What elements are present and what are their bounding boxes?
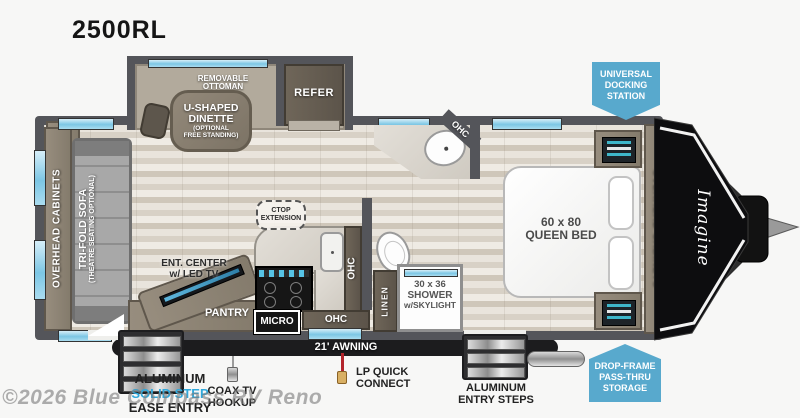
- stove-knobs: [259, 270, 309, 277]
- ent-center-label: ENT. CENTER w/ LED TV: [146, 258, 242, 280]
- step-tread: [467, 353, 525, 364]
- bath-sink-drain: [444, 146, 449, 151]
- refer-label: REFER: [284, 88, 344, 100]
- burner: [264, 282, 276, 294]
- sink-drain: [331, 251, 334, 254]
- microwave: MICRO: [254, 310, 300, 334]
- nightstand-bottom: [594, 292, 642, 330]
- pantry-label: PANTRY: [196, 308, 258, 320]
- lp-line: [341, 353, 344, 373]
- refer-base: [288, 120, 340, 131]
- queen-bed: 60 x 80 QUEEN BED: [503, 166, 641, 298]
- u-shaped-dinette: U-SHAPED DINETTE (OPTIONAL FREE STANDING…: [170, 90, 252, 152]
- top-left-corner-window: [58, 118, 114, 130]
- dinette-label-2: DINETTE: [189, 114, 234, 125]
- universal-docking-badge: UNIVERSAL DOCKING STATION: [592, 62, 660, 120]
- rear-wall-window-upper: [34, 150, 46, 206]
- burner: [264, 296, 276, 308]
- coax-connector-icon: [227, 367, 238, 382]
- dealer-watermark: ©2026 Blue Compass RV Reno: [2, 386, 322, 410]
- kitchen-bath-wall: [362, 198, 372, 310]
- front-cap: [654, 112, 800, 346]
- dinette-refer-divider: [276, 64, 284, 126]
- step-tread: [467, 367, 525, 378]
- kitchen-ohc-side-label: OHC: [347, 239, 360, 299]
- brand-logo: Imagine: [692, 168, 714, 288]
- rear-overhead-cabinets-label: OVERHEAD CABINETS: [52, 144, 65, 314]
- step-tread: [467, 339, 525, 350]
- coax-line: [232, 356, 234, 367]
- burner: [290, 282, 302, 294]
- shower: 30 x 36 SHOWER w/SKYLIGHT: [397, 264, 463, 332]
- dinette-sub-2: FREE STANDING): [184, 133, 239, 140]
- pillow: [608, 176, 634, 230]
- step-tread: [123, 351, 181, 362]
- step-tread: [123, 336, 181, 347]
- bath-bedroom-wall: [470, 125, 480, 179]
- dinette-window: [148, 59, 268, 68]
- nightstand-drawers: [602, 300, 636, 326]
- linen-label: LINEN: [380, 277, 391, 327]
- bed-label: 60 x 80 QUEEN BED: [513, 216, 609, 242]
- awning-label: 21' AWNING: [286, 342, 406, 354]
- bedroom-window: [492, 118, 562, 130]
- kitchen-counter-arm: [314, 270, 346, 314]
- entry-steps: [462, 334, 528, 380]
- kitchen-window: [308, 328, 362, 340]
- kitchen-sink: [320, 232, 344, 272]
- drop-frame-badge: DROP-FRAME PASS-THRU STORAGE: [589, 344, 661, 402]
- lp-connector-icon: [337, 371, 347, 384]
- nightstand-top: [594, 130, 642, 168]
- kitchen-ohc-bottom: OHC: [302, 310, 370, 330]
- stove: [255, 266, 313, 312]
- sofa-label: TRI-FOLD SOFA (THEATRE SEATING OPTIONAL): [74, 139, 100, 319]
- bumper-bar: [527, 351, 585, 367]
- lp-annotation: LP QUICK CONNECT: [356, 366, 420, 391]
- burner: [290, 296, 302, 308]
- nightstand-drawers: [602, 137, 636, 163]
- countertop-extension: CTOP EXTENSION: [256, 200, 306, 230]
- shower-skylight: [404, 269, 458, 277]
- entry-steps-annotation: ALUMINUM ENTRY STEPS: [450, 382, 542, 407]
- rear-wall-window-lower: [34, 240, 46, 300]
- pillow: [608, 236, 634, 290]
- floorplan-2500rl: 2500RL 21' AWNING REMOVABLE OTTOMAN U-SH…: [0, 0, 800, 418]
- floorplan-title: 2500RL: [72, 16, 167, 45]
